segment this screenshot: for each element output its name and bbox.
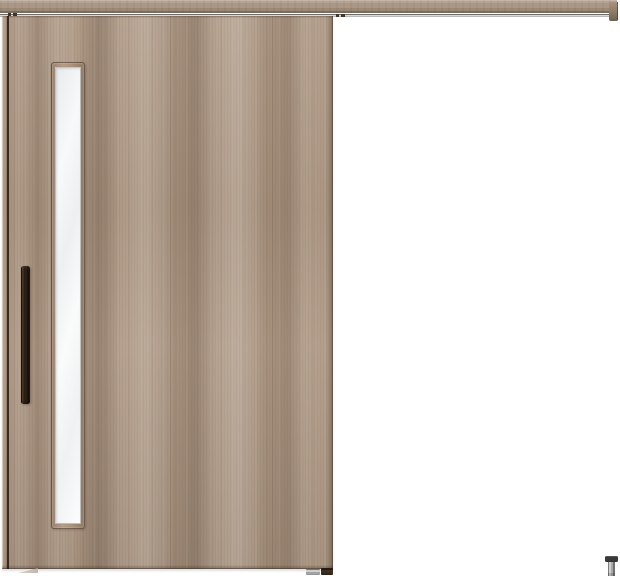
door-right-edge-shade bbox=[325, 16, 333, 569]
floor-guide-pin bbox=[605, 556, 619, 576]
bottom-guide-metal bbox=[306, 569, 320, 575]
door-panel bbox=[2, 16, 333, 569]
floor-guide-body bbox=[608, 562, 615, 576]
slit-window-frame bbox=[51, 62, 85, 529]
hanger-roller-right bbox=[336, 14, 347, 17]
wood-plank-seam bbox=[272, 16, 273, 569]
wood-plank-seam bbox=[170, 16, 171, 569]
top-rail bbox=[0, 0, 617, 13]
door-top-edge-shadow bbox=[2, 16, 333, 18]
door-bottom-edge-shadow bbox=[2, 565, 333, 569]
rail-end-cap bbox=[609, 2, 618, 21]
bottom-guide-dark bbox=[321, 568, 333, 575]
product-photo-sliding-door bbox=[0, 0, 620, 576]
door-handle-bar bbox=[21, 266, 30, 404]
slit-window-glass bbox=[55, 67, 81, 524]
door-left-edge-stile bbox=[2, 16, 10, 569]
